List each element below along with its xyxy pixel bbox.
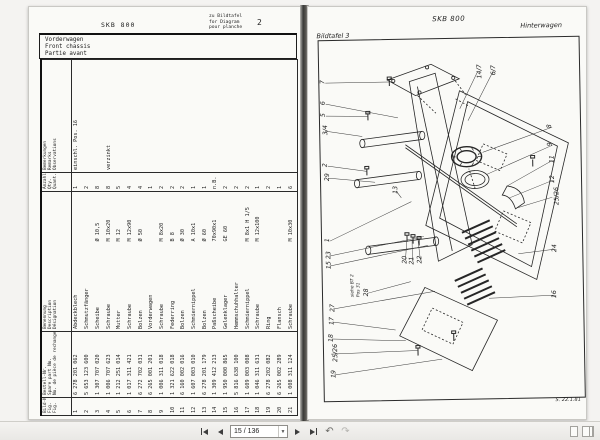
dim-cell: M 10x20 bbox=[104, 192, 115, 244]
facing-pages-button[interactable] bbox=[582, 426, 590, 437]
part_no-cell: 1 321 622 018 bbox=[168, 332, 179, 398]
fig-cell: 6 bbox=[125, 398, 136, 416]
table-row: 196 278 202 082Ring2 bbox=[264, 60, 275, 416]
table-row: 16 278 201 062Abdeckblech1einschl. Pos. … bbox=[71, 60, 83, 416]
fig-cell: 13 bbox=[200, 398, 211, 416]
name-cell: Scheibe bbox=[93, 244, 104, 332]
dim-cell bbox=[232, 192, 243, 244]
part_no-cell: 6 265 001 201 bbox=[147, 332, 158, 398]
table-row: 76 272 702 031BolzenØ 504 bbox=[136, 60, 147, 416]
table-row: 165 816 638 100Hemmschuhhalter2 bbox=[232, 60, 243, 416]
fig-cell: 18 bbox=[254, 398, 265, 416]
bolts bbox=[363, 75, 538, 357]
name-cell: Schraube bbox=[157, 244, 168, 332]
callout-label: 2 bbox=[323, 163, 329, 167]
table-row: 181 046 311 631SchraubeM 12x1001 bbox=[254, 60, 265, 416]
name-cell: Bolzen bbox=[136, 244, 147, 332]
callout-label: 13 bbox=[393, 186, 399, 194]
remark-cell: verzinkt bbox=[104, 60, 115, 173]
left-page: SKB 800 zu Bildtafel for Diagram pour pl… bbox=[28, 6, 302, 420]
rotated-parts-table-wrap: Bild-Nr.Fig.Fig.Bestell-Nr.Spare part No… bbox=[40, 60, 298, 416]
viewer-window: SKB 800 zu Bildtafel for Diagram pour pl… bbox=[0, 0, 600, 440]
document-canvas: SKB 800 zu Bildtafel for Diagram pour pl… bbox=[0, 0, 600, 421]
qty-cell: 2 bbox=[232, 173, 243, 192]
name-cell: Schraube bbox=[254, 244, 265, 332]
callout-label: 12 bbox=[550, 175, 556, 183]
fig-cell: 21 bbox=[286, 398, 298, 416]
callout-label: 22 bbox=[417, 255, 423, 263]
plate-date-note: S. 22.1.81 bbox=[555, 397, 581, 403]
callout-label: 19 bbox=[331, 370, 337, 378]
table-row: 86 265 001 201Vorderwagen1 bbox=[147, 60, 158, 416]
page-indicator: 15 / 136 bbox=[234, 428, 278, 435]
table-row: 141 309 412 213Paßscheibe70x90x1n.B. bbox=[211, 60, 222, 416]
elbow-bracket bbox=[502, 186, 524, 209]
callout-label: 25/26 bbox=[333, 344, 339, 362]
title-box: Vorderwagen Front chassis Partie avant bbox=[39, 33, 297, 59]
callout-label: 18 bbox=[329, 334, 335, 342]
fig-cell: 11 bbox=[179, 398, 190, 416]
remark-cell bbox=[232, 60, 243, 173]
table-row: 136 278 201 179BolzenØ 601 bbox=[200, 60, 211, 416]
part_no-cell: 1 008 311 124 bbox=[286, 332, 298, 398]
part_no-cell: 6 160 002 016 bbox=[179, 332, 190, 398]
table-row: 206 265 002 289Flansch1 bbox=[275, 60, 286, 416]
fig-cell: 14 bbox=[211, 398, 222, 416]
dim-cell: Ø 50 bbox=[136, 192, 147, 244]
fig-cell: 4 bbox=[104, 398, 115, 416]
remark-cell bbox=[286, 60, 298, 173]
dim-cell bbox=[83, 192, 94, 244]
remark-cell: einschl. Pos. 16 bbox=[71, 60, 83, 173]
remark-cell bbox=[168, 60, 179, 173]
dim-cell: M 10x30 bbox=[286, 192, 298, 244]
page-navigation: 15 / 136 ▼ ↶ ↷ bbox=[198, 425, 352, 438]
name-cell: Vorderwagen bbox=[147, 244, 158, 332]
callout-label: 27 bbox=[330, 304, 336, 312]
name-cell: Schraube bbox=[125, 244, 136, 332]
table-row: 211 008 311 124SchraubeM 10x306 bbox=[286, 60, 298, 416]
name-cell: Gelenklager bbox=[222, 244, 233, 332]
callout-label: 15 bbox=[326, 261, 332, 269]
lower-frame bbox=[399, 286, 498, 372]
remark-cell bbox=[93, 60, 104, 173]
callout-label: 28 bbox=[364, 288, 370, 296]
part_no-cell: 1 017 311 421 bbox=[125, 332, 136, 398]
dim-cell: M 8x1 H 1/5 bbox=[243, 192, 254, 244]
callout-label: 16 bbox=[552, 290, 558, 298]
remark-cell bbox=[211, 60, 222, 173]
header-part-no: Bestell-Nr.Spare part No.No. de pièce de… bbox=[41, 332, 71, 398]
dim-cell: B 8 bbox=[168, 192, 179, 244]
callout-label: 14/7 bbox=[477, 64, 483, 78]
qty-cell: 5 bbox=[115, 173, 126, 192]
fig-cell: 7 bbox=[136, 398, 147, 416]
part_no-cell: 6 265 002 289 bbox=[275, 332, 286, 398]
fig-cell: 9 bbox=[157, 398, 168, 416]
remark-cell bbox=[222, 60, 233, 173]
callout-label: 1 bbox=[325, 238, 331, 242]
next-page-icon bbox=[295, 429, 300, 435]
dim-cell: Ø 60 bbox=[200, 192, 211, 244]
remark-cell bbox=[157, 60, 168, 173]
qty-cell: 6 bbox=[286, 173, 298, 192]
right-page: SKB 800 Bildtafel 3 Hinterwagen bbox=[307, 6, 587, 420]
remark-cell bbox=[179, 60, 190, 173]
qty-cell: 2 bbox=[179, 173, 190, 192]
callout-label: 3/4 bbox=[323, 125, 329, 135]
dim-cell bbox=[264, 192, 275, 244]
table-row: 101 321 622 018FederringB 82 bbox=[168, 60, 179, 416]
remark-cell bbox=[190, 60, 201, 173]
part_no-cell: 5 653 123 600 bbox=[83, 332, 94, 398]
name-cell: Paßscheibe bbox=[211, 244, 222, 332]
qty-cell: 2 bbox=[243, 173, 254, 192]
exploded-diagram: 7653/4229123152827171825/261914/76/78911… bbox=[308, 27, 593, 412]
callout-label: 11 bbox=[550, 155, 556, 163]
dim-cell bbox=[147, 192, 158, 244]
dim-cell bbox=[275, 192, 286, 244]
qty-cell: 2 bbox=[168, 173, 179, 192]
doc-code-right: SKB 800 bbox=[432, 15, 465, 24]
table-row: 121 607 003 010SchmiernippelA 10x11 bbox=[190, 60, 201, 416]
part_no-cell: 1 607 003 010 bbox=[190, 332, 201, 398]
chevron-down-icon[interactable]: ▼ bbox=[278, 426, 287, 437]
dim-cell: M 12 bbox=[115, 192, 126, 244]
header-dimension bbox=[41, 192, 71, 244]
cover-plate bbox=[387, 64, 460, 96]
table-row: 51 212 251 014MutterM 125 bbox=[115, 60, 126, 416]
fig-cell: 3 bbox=[93, 398, 104, 416]
part_no-cell: 1 046 311 631 bbox=[254, 332, 265, 398]
ref-number: 2 bbox=[257, 18, 262, 27]
dim-cell: Ø 30 bbox=[179, 192, 190, 244]
fig-cell: 20 bbox=[275, 398, 286, 416]
name-cell: Bolzen bbox=[179, 244, 190, 332]
next-view-button[interactable]: ↷ bbox=[339, 425, 352, 438]
qty-cell: 2 bbox=[264, 173, 275, 192]
layout-controls bbox=[570, 426, 594, 437]
remark-cell bbox=[243, 60, 254, 173]
dim-cell: M 12x100 bbox=[254, 192, 265, 244]
previous-page-icon bbox=[218, 429, 223, 435]
part_no-cell: 1 307 707 020 bbox=[93, 332, 104, 398]
qty-cell: 1 bbox=[254, 173, 265, 192]
qty-cell: 1 bbox=[275, 173, 286, 192]
callout-label: 25/26 bbox=[554, 187, 560, 205]
page-number-box[interactable]: 15 / 136 ▼ bbox=[230, 425, 288, 438]
part_no-cell: 1 212 251 014 bbox=[115, 332, 126, 398]
table-row: 31 307 707 020ScheibeØ 10,58 bbox=[93, 60, 104, 416]
header-remarks: BemerkungenRemarksObservations bbox=[41, 60, 71, 173]
qty-cell: 1 bbox=[190, 173, 201, 192]
part_no-cell: 6 278 201 179 bbox=[200, 332, 211, 398]
name-cell: Abdeckblech bbox=[71, 244, 83, 332]
fig-cell: 16 bbox=[232, 398, 243, 416]
table-row: 171 609 003 008SchmiernippelM 8x1 H 1/52 bbox=[243, 60, 254, 416]
first-page-button[interactable] bbox=[198, 425, 211, 438]
header-fig: Bild-Nr.Fig.Fig. bbox=[41, 398, 71, 416]
dim-cell: GE 60 bbox=[222, 192, 233, 244]
first-page-icon bbox=[201, 428, 203, 435]
callout-label: 21 bbox=[409, 257, 415, 265]
table-row: 25 653 123 600Schmutzfänger2 bbox=[83, 60, 94, 416]
viewer-toolbar: 15 / 136 ▼ ↶ ↷ bbox=[0, 421, 600, 440]
dim-cell: A 10x1 bbox=[190, 192, 201, 244]
name-cell: Schraube bbox=[104, 244, 115, 332]
parts-table: Bild-Nr.Fig.Fig.Bestell-Nr.Spare part No… bbox=[40, 59, 298, 416]
remark-cell bbox=[83, 60, 94, 173]
part_no-cell: 1 609 003 008 bbox=[243, 332, 254, 398]
part_no-cell: 1 006 311 018 bbox=[157, 332, 168, 398]
fig-cell: 17 bbox=[243, 398, 254, 416]
remark-cell bbox=[136, 60, 147, 173]
callout-label: 23 bbox=[326, 251, 332, 259]
callout-label: 29 bbox=[325, 173, 331, 181]
callout-label: 6/7 bbox=[491, 65, 497, 75]
previous-view-button[interactable]: ↶ bbox=[323, 425, 336, 438]
part_no-cell: 6 278 202 082 bbox=[264, 332, 275, 398]
table-row: 151 950 000 865GelenklagerGE 602 bbox=[222, 60, 233, 416]
fig-cell: 19 bbox=[264, 398, 275, 416]
dim-cell: 70x90x1 bbox=[211, 192, 222, 244]
callout-label: 24 bbox=[552, 244, 558, 252]
callout-label: 6 bbox=[321, 101, 327, 105]
name-cell: Schmiernippel bbox=[190, 244, 201, 332]
next-page-button[interactable] bbox=[291, 425, 304, 438]
qty-cell: n.B. bbox=[211, 173, 222, 192]
previous-view-icon: ↶ bbox=[325, 425, 333, 438]
name-cell: Schraube bbox=[286, 244, 298, 332]
next-view-icon: ↷ bbox=[341, 425, 349, 438]
name-cell: Bolzen bbox=[200, 244, 211, 332]
remark-cell bbox=[200, 60, 211, 173]
qty-cell: 2 bbox=[83, 173, 94, 192]
doc-code-left: SKB 800 bbox=[101, 21, 135, 29]
fig-cell: 15 bbox=[222, 398, 233, 416]
header-qty: AnzahlQty.Quant. bbox=[41, 173, 71, 192]
name-cell: Ring bbox=[264, 244, 275, 332]
diagram-note: siehe BT 2 Pos 31 bbox=[350, 274, 362, 297]
name-cell: Schmutzfänger bbox=[83, 244, 94, 332]
ref-note: zu Bildtafel for Diagram pour planche bbox=[209, 14, 242, 31]
previous-page-button[interactable] bbox=[214, 425, 227, 438]
callout-label: 8 bbox=[547, 124, 553, 128]
remark-cell bbox=[275, 60, 286, 173]
part_no-cell: 6 272 702 031 bbox=[136, 332, 147, 398]
qty-cell: 2 bbox=[222, 173, 233, 192]
dim-cell: Ø 10,5 bbox=[93, 192, 104, 244]
callout-label: 17 bbox=[329, 317, 335, 325]
remark-cell bbox=[264, 60, 275, 173]
remark-cell bbox=[254, 60, 265, 173]
callout-label: 9 bbox=[547, 142, 553, 146]
last-page-button[interactable] bbox=[307, 425, 320, 438]
name-cell: Hemmschuhhalter bbox=[232, 244, 243, 332]
qty-cell: 8 bbox=[104, 173, 115, 192]
qty-cell: 1 bbox=[200, 173, 211, 192]
fig-cell: 2 bbox=[83, 398, 94, 416]
fig-cell: 8 bbox=[147, 398, 158, 416]
dim-cell: M 12x90 bbox=[125, 192, 136, 244]
table-row: 61 017 311 421SchraubeM 12x904 bbox=[125, 60, 136, 416]
table-row: 91 006 311 018SchraubeM 8x202 bbox=[157, 60, 168, 416]
qty-cell: 1 bbox=[147, 173, 158, 192]
dim-cell bbox=[71, 192, 83, 244]
qty-cell: 1 bbox=[71, 173, 83, 192]
single-page-button[interactable] bbox=[570, 426, 578, 437]
qty-cell: 2 bbox=[157, 173, 168, 192]
fig-cell: 10 bbox=[168, 398, 179, 416]
part_no-cell: 5 816 638 100 bbox=[232, 332, 243, 398]
fig-cell: 1 bbox=[71, 398, 83, 416]
dim-cell: M 8x20 bbox=[157, 192, 168, 244]
part_no-cell: 1 006 707 623 bbox=[104, 332, 115, 398]
fig-cell: 5 bbox=[115, 398, 126, 416]
callout-label: 5 bbox=[321, 113, 327, 117]
last-page-icon bbox=[316, 428, 318, 435]
part_no-cell: 1 309 412 213 bbox=[211, 332, 222, 398]
remark-cell bbox=[147, 60, 158, 173]
qty-cell: 4 bbox=[125, 173, 136, 192]
remark-cell bbox=[125, 60, 136, 173]
header-name: BenennungDescriptionDésignation bbox=[41, 244, 71, 332]
qty-cell: 8 bbox=[93, 173, 104, 192]
callout-label: 7 bbox=[320, 80, 326, 84]
remark-cell bbox=[115, 60, 126, 173]
table-row: 41 006 707 623SchraubeM 10x208verzinkt bbox=[104, 60, 115, 416]
bearing-ring bbox=[451, 146, 481, 167]
name-cell: Flansch bbox=[275, 244, 286, 332]
table-row: 116 160 002 016BolzenØ 302 bbox=[179, 60, 190, 416]
part_no-cell: 6 278 201 062 bbox=[71, 332, 83, 398]
name-cell: Mutter bbox=[115, 244, 126, 332]
name-cell: Federring bbox=[168, 244, 179, 332]
part_no-cell: 1 950 000 865 bbox=[222, 332, 233, 398]
name-cell: Schmiernippel bbox=[243, 244, 254, 332]
qty-cell: 4 bbox=[136, 173, 147, 192]
fig-cell: 12 bbox=[190, 398, 201, 416]
